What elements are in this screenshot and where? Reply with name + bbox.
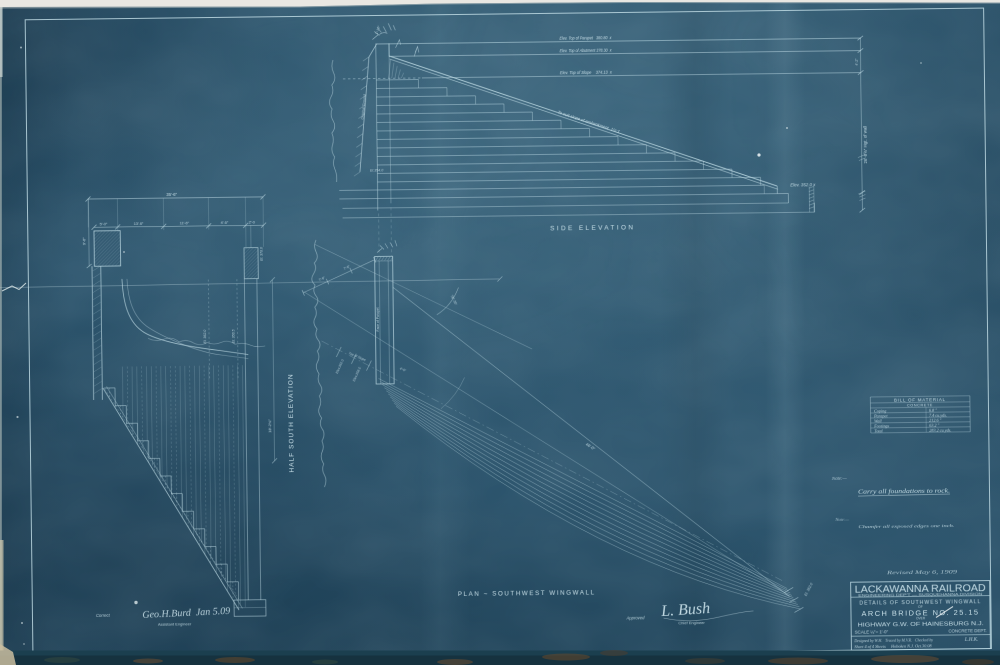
svg-text:SIDE ELEVATION: SIDE ELEVATION (550, 224, 635, 232)
svg-text:Face of Parapet: Face of Parapet (376, 307, 380, 331)
svg-text:13′-6″: 13′-6″ (134, 222, 144, 226)
svg-text:Chief Engineer: Chief Engineer (678, 620, 705, 625)
svg-text:11′-6″: 11′-6″ (180, 221, 190, 225)
svg-text:26′-8⅝″ Hgt. of wall: 26′-8⅝″ Hgt. of wall (863, 126, 868, 164)
svg-text:El. 378.0: El. 378.0 (259, 247, 263, 261)
svg-text:Approved: Approved (625, 615, 645, 620)
svg-text:283.2 cu.yds.: 283.2 cu.yds. (929, 427, 951, 432)
svg-text:Assistant Engineer: Assistant Engineer (158, 621, 192, 626)
svg-text:2′-0: 2′-0 (249, 220, 255, 224)
svg-text:5′-0″: 5′-0″ (100, 222, 108, 226)
svg-text:4′-2″: 4′-2″ (855, 58, 859, 66)
svg-text:Note:—: Note:— (834, 517, 849, 522)
svg-text:Note:—: Note:— (831, 477, 848, 482)
svg-text:Elev. Top of Parapet 380.80: Elev. Top of Parapet 380.80 x (559, 35, 612, 42)
svg-text:El. 362.0: El. 362.0 (203, 330, 207, 344)
svg-text:Sheet 4 of 4 Sheets Hoboke: Sheet 4 of 4 Sheets Hoboken N.J. Oct.30.… (854, 643, 932, 649)
svg-text:Total: Total (874, 428, 883, 433)
svg-text:Elev. Top of Slope 374.13: Elev. Top of Slope 374.13 x (560, 70, 613, 77)
svg-text:El.354.0: El.354.0 (370, 168, 383, 172)
svg-text:Revised May 6, 1909: Revised May 6, 1909 (885, 569, 957, 576)
svg-text:BILL OF MATERIAL: BILL OF MATERIAL (894, 397, 946, 403)
svg-text:Elev. Top of Abutment 378.30: Elev. Top of Abutment 378.30 x (560, 48, 613, 55)
svg-text:OVER: OVER (916, 616, 926, 620)
svg-text:35′-6″: 35′-6″ (166, 192, 177, 197)
svg-text:HALF SOUTH ELEVATION: HALF SOUTH ELEVATION (288, 373, 296, 472)
svg-text:Correct: Correct (96, 613, 111, 618)
svg-text:CONCRETE DEPT.: CONCRETE DEPT. (948, 628, 986, 633)
svg-text:L.H.K.: L.H.K. (964, 638, 979, 643)
svg-text:El. 356.5: El. 356.5 (231, 329, 235, 343)
svg-text:L. Bush: L. Bush (660, 600, 711, 620)
svg-text:Elev. 352.0 x: Elev. 352.0 x (790, 182, 816, 187)
svg-text:18′-2¾″: 18′-2¾″ (267, 419, 272, 433)
svg-text:SCALE ¼″= 1′-0″: SCALE ¼″= 1′-0″ (855, 629, 889, 634)
svg-text:9′-6″: 9′-6″ (82, 237, 86, 245)
svg-text:4′-6″: 4′-6″ (221, 221, 229, 225)
